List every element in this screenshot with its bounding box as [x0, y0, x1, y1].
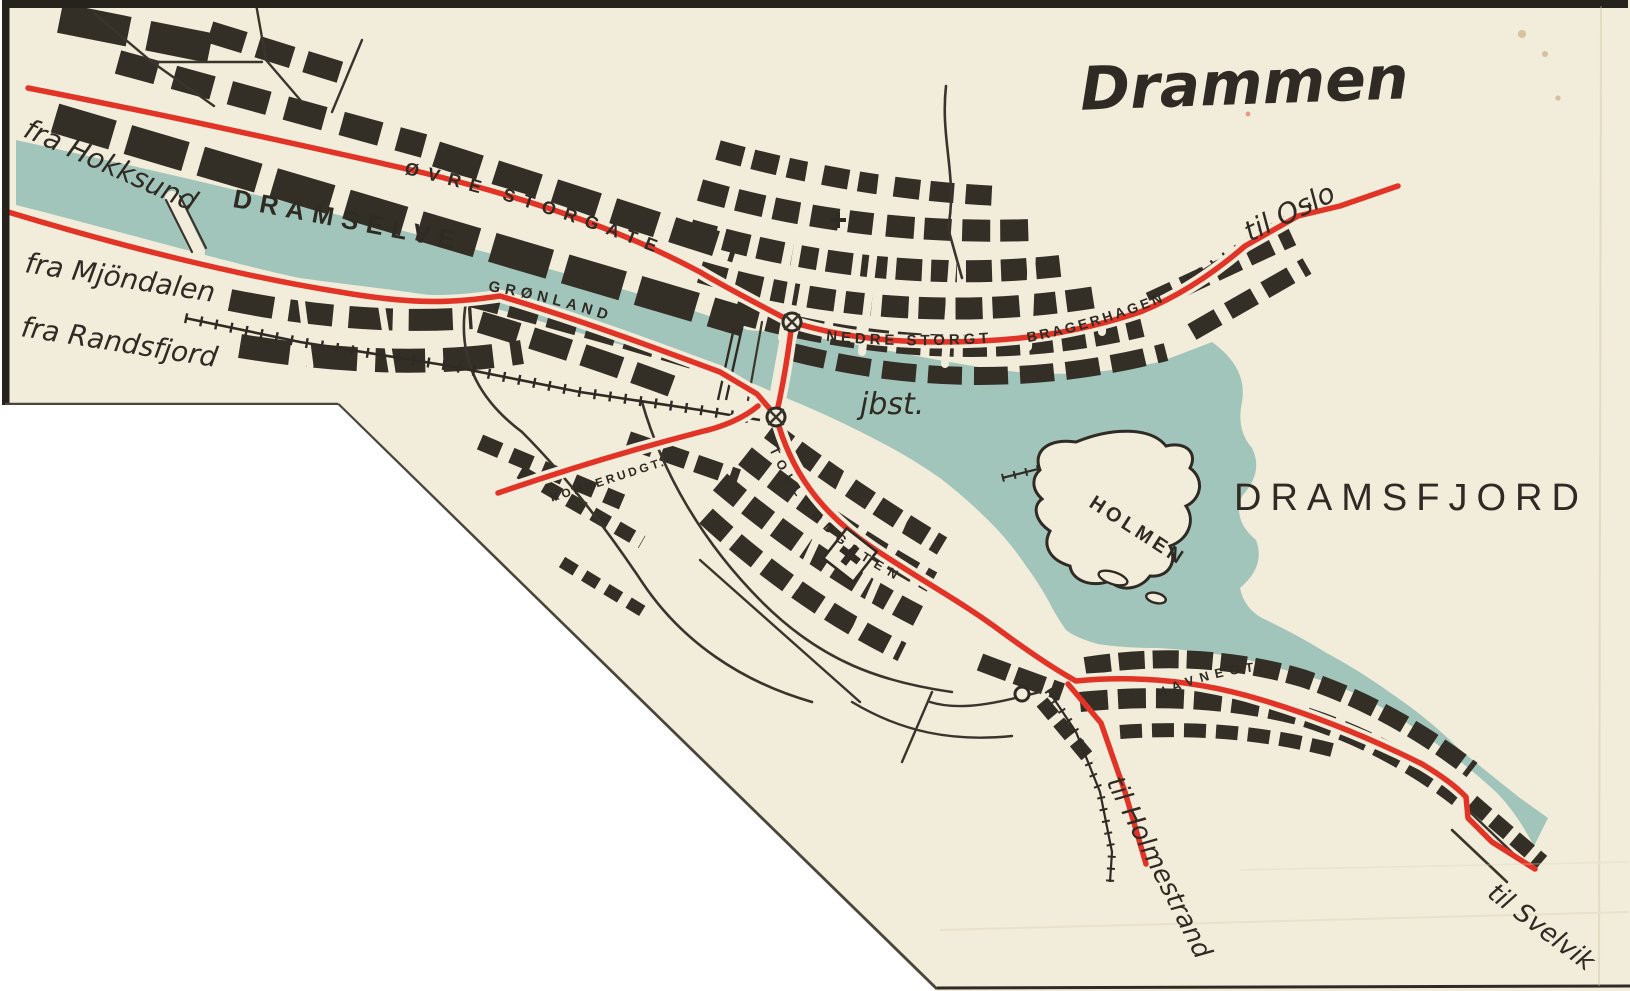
station-marker-bragernes: [783, 313, 801, 331]
map-title: Drammen: [1079, 43, 1410, 124]
label-dramsfjord: DRAMSFJORD: [1234, 477, 1588, 519]
harbor-dot: [1015, 687, 1029, 701]
label-jbst: jbst.: [856, 387, 924, 422]
station-marker-jbst: [767, 408, 785, 426]
map-page: Drammen fra Hokksund fra Mjöndalen fra R…: [0, 0, 1630, 991]
drammen-map-canvas: Drammen fra Hokksund fra Mjöndalen fra R…: [0, 0, 1630, 991]
